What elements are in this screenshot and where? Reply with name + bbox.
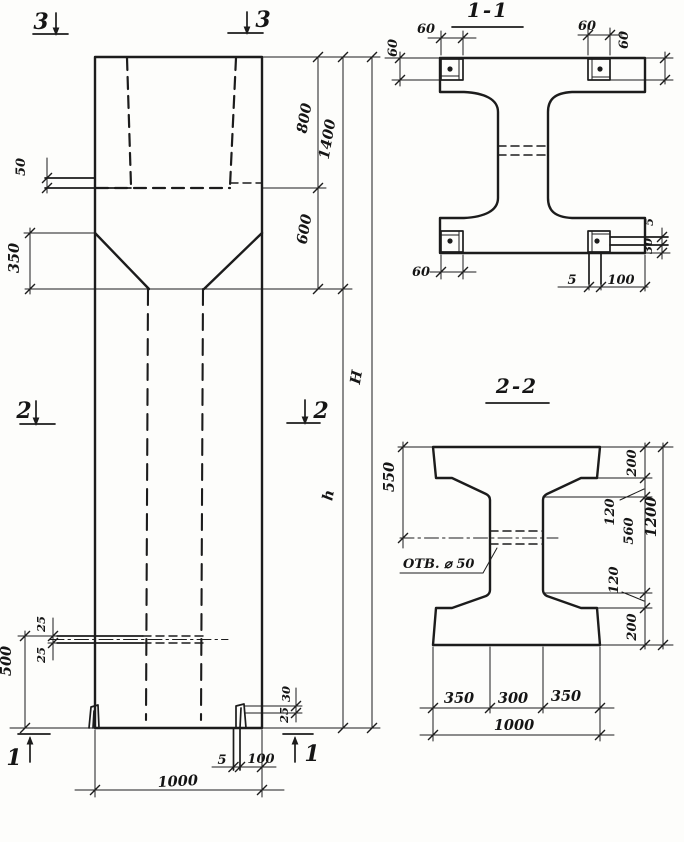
section-1-1-view: 1-1 xyxy=(385,0,673,292)
dim-middle-segment-600: 600 xyxy=(294,213,316,246)
taper-edges xyxy=(95,233,262,289)
dim-plate-top-right-60: 60 xyxy=(578,19,596,34)
section-1-1-hole-hidden xyxy=(498,146,548,155)
marker-label: 3 xyxy=(255,7,270,33)
section-marker-3-left: 3 xyxy=(33,9,68,36)
drawing-sheet: 50 350 500 25 25 800 600 1400 h H 30 25 … xyxy=(0,0,684,842)
hidden-recess-left xyxy=(127,58,131,186)
marker-label: 1 xyxy=(6,745,21,771)
dim-plate-top-left-60: 60 xyxy=(417,22,435,37)
section-marker-2-right: 2 xyxy=(287,398,329,425)
base-strip-1-1 xyxy=(589,253,601,284)
section-arrow-up-icon xyxy=(27,736,34,745)
section-marker-3-right: 3 xyxy=(228,7,271,35)
dim-haunch-lower-120: 120 xyxy=(607,566,622,593)
dim-hole-above-25: 25 xyxy=(34,616,48,633)
dim-top-total-1400: 1400 xyxy=(316,118,340,161)
lug-bar xyxy=(610,237,668,245)
marker-label: 1 xyxy=(304,741,319,767)
anchor-plate-bottom-right xyxy=(588,231,610,252)
anchor-plate-top-left xyxy=(441,59,463,80)
dim-strip-5: 5 xyxy=(567,273,576,288)
dim-bottom-flange-200: 200 xyxy=(625,613,640,641)
anchor-plate-top-right xyxy=(588,59,610,80)
dim-foot-lower-25: 25 xyxy=(277,707,291,724)
section-marker-1-right: 1 xyxy=(283,734,320,767)
section-2-2-outline xyxy=(433,447,600,645)
section-2-2-dim-ticks xyxy=(398,442,667,739)
hidden-web-right xyxy=(201,289,203,720)
section-marker-1-left: 1 xyxy=(6,734,50,771)
dim-bottom-web-300: 300 xyxy=(498,690,528,707)
anchor-dot-icon xyxy=(594,238,599,243)
dim-bottom-right-350: 350 xyxy=(551,688,581,705)
dim-web-height-560: 560 xyxy=(622,517,637,544)
column-outline xyxy=(95,57,262,728)
dim-ledge-50: 50 xyxy=(14,158,29,176)
dim-section-depth-1200: 1200 xyxy=(643,497,660,537)
dim-lug-5: 5 xyxy=(642,218,656,226)
section-1-1-title: 1-1 xyxy=(467,0,509,22)
anchor-dot-icon xyxy=(447,238,452,243)
elevation-view: 50 350 500 25 25 800 600 1400 h H 30 25 … xyxy=(0,7,380,797)
section-2-2-view: 2-2 ОТВ. ⌀ 50 xyxy=(381,374,673,741)
column-drawing: 50 350 500 25 25 800 600 1400 h H 30 25 … xyxy=(0,0,684,842)
hole-label: ОТВ. ⌀ 50 xyxy=(403,557,474,572)
dim-taper-350: 350 xyxy=(6,243,23,273)
marker-label: 2 xyxy=(312,398,328,424)
ledge-lines xyxy=(45,178,131,188)
foot-right xyxy=(236,704,246,728)
anchor-dot-icon xyxy=(447,66,452,71)
dim-hole-level-500: 500 xyxy=(0,646,15,676)
section-2-2-title: 2-2 xyxy=(495,374,538,398)
dim-shaft-height-h: h xyxy=(319,489,338,502)
anchor-dot-icon xyxy=(597,66,602,71)
dim-flange-to-hole-550: 550 xyxy=(381,462,398,492)
section-1-1-extension-lines xyxy=(385,28,673,291)
hidden-recess-right xyxy=(230,58,236,186)
dim-base-plate-100: 100 xyxy=(247,752,274,767)
dim-bottom-left-350: 350 xyxy=(444,690,474,707)
dim-top-flange-200: 200 xyxy=(625,449,640,477)
dim-plate-side-right-60: 60 xyxy=(617,31,632,49)
marker-label: 3 xyxy=(33,9,48,35)
marker-label: 2 xyxy=(15,398,31,424)
dim-hole-below-25: 25 xyxy=(34,647,48,664)
dim-haunch-upper-120: 120 xyxy=(603,498,618,525)
dim-strip-100: 100 xyxy=(607,273,634,288)
dim-top-segment-800: 800 xyxy=(294,102,316,135)
hidden-web-left xyxy=(146,289,148,720)
hole-callout: ОТВ. ⌀ 50 xyxy=(400,548,497,573)
dim-section-width-1000: 1000 xyxy=(494,717,534,734)
section-2-2-extension-lines xyxy=(398,447,673,741)
dim-plate-bottom-left-60: 60 xyxy=(412,265,430,280)
dim-full-height-H: H xyxy=(347,368,367,387)
anchor-plate-bottom-left xyxy=(441,231,463,252)
elevation-extension-lines xyxy=(10,57,380,797)
dim-base-plate-5: 5 xyxy=(217,753,226,768)
dim-foot-upper-30: 30 xyxy=(279,686,293,702)
section-arrow-up-icon xyxy=(292,736,299,745)
dim-column-width-1000: 1000 xyxy=(157,772,198,791)
dim-lug-30: 30 xyxy=(641,238,655,254)
section-marker-2-left: 2 xyxy=(15,398,55,426)
dim-plate-side-left-60: 60 xyxy=(386,39,401,57)
section-2-2-dimension-lines xyxy=(403,442,663,735)
